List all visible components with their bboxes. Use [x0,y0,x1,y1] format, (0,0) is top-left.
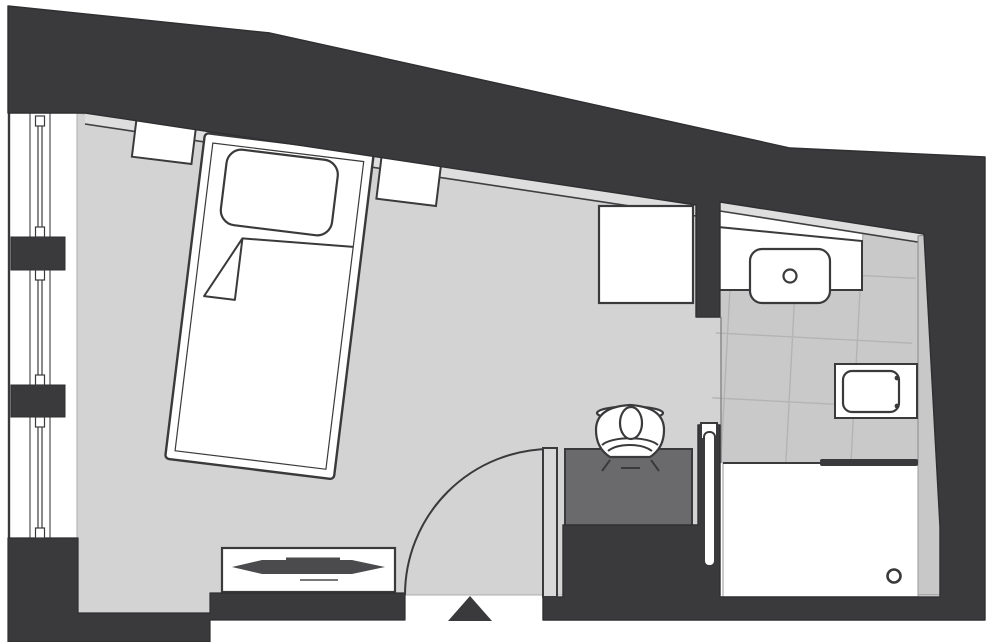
door-leaf [543,448,557,597]
radiator [222,548,395,592]
radiator-fin-center [286,558,340,563]
floor-plan [0,0,1000,642]
toilet-hinge-bottom [895,404,900,409]
partition-panel-bar [704,432,715,566]
window-pier-lower [11,385,65,417]
desk [565,449,692,526]
person-head [620,407,642,439]
sink-drain [784,270,797,283]
shower [723,459,918,597]
wardrobe [599,206,693,303]
window-pier-upper [11,237,65,270]
partition-panel [701,423,717,566]
pillow [219,148,339,237]
toilet-hinge-top [895,376,900,381]
shower-drain [888,570,901,583]
toilet [835,364,917,418]
shower-glass-door [820,459,918,466]
